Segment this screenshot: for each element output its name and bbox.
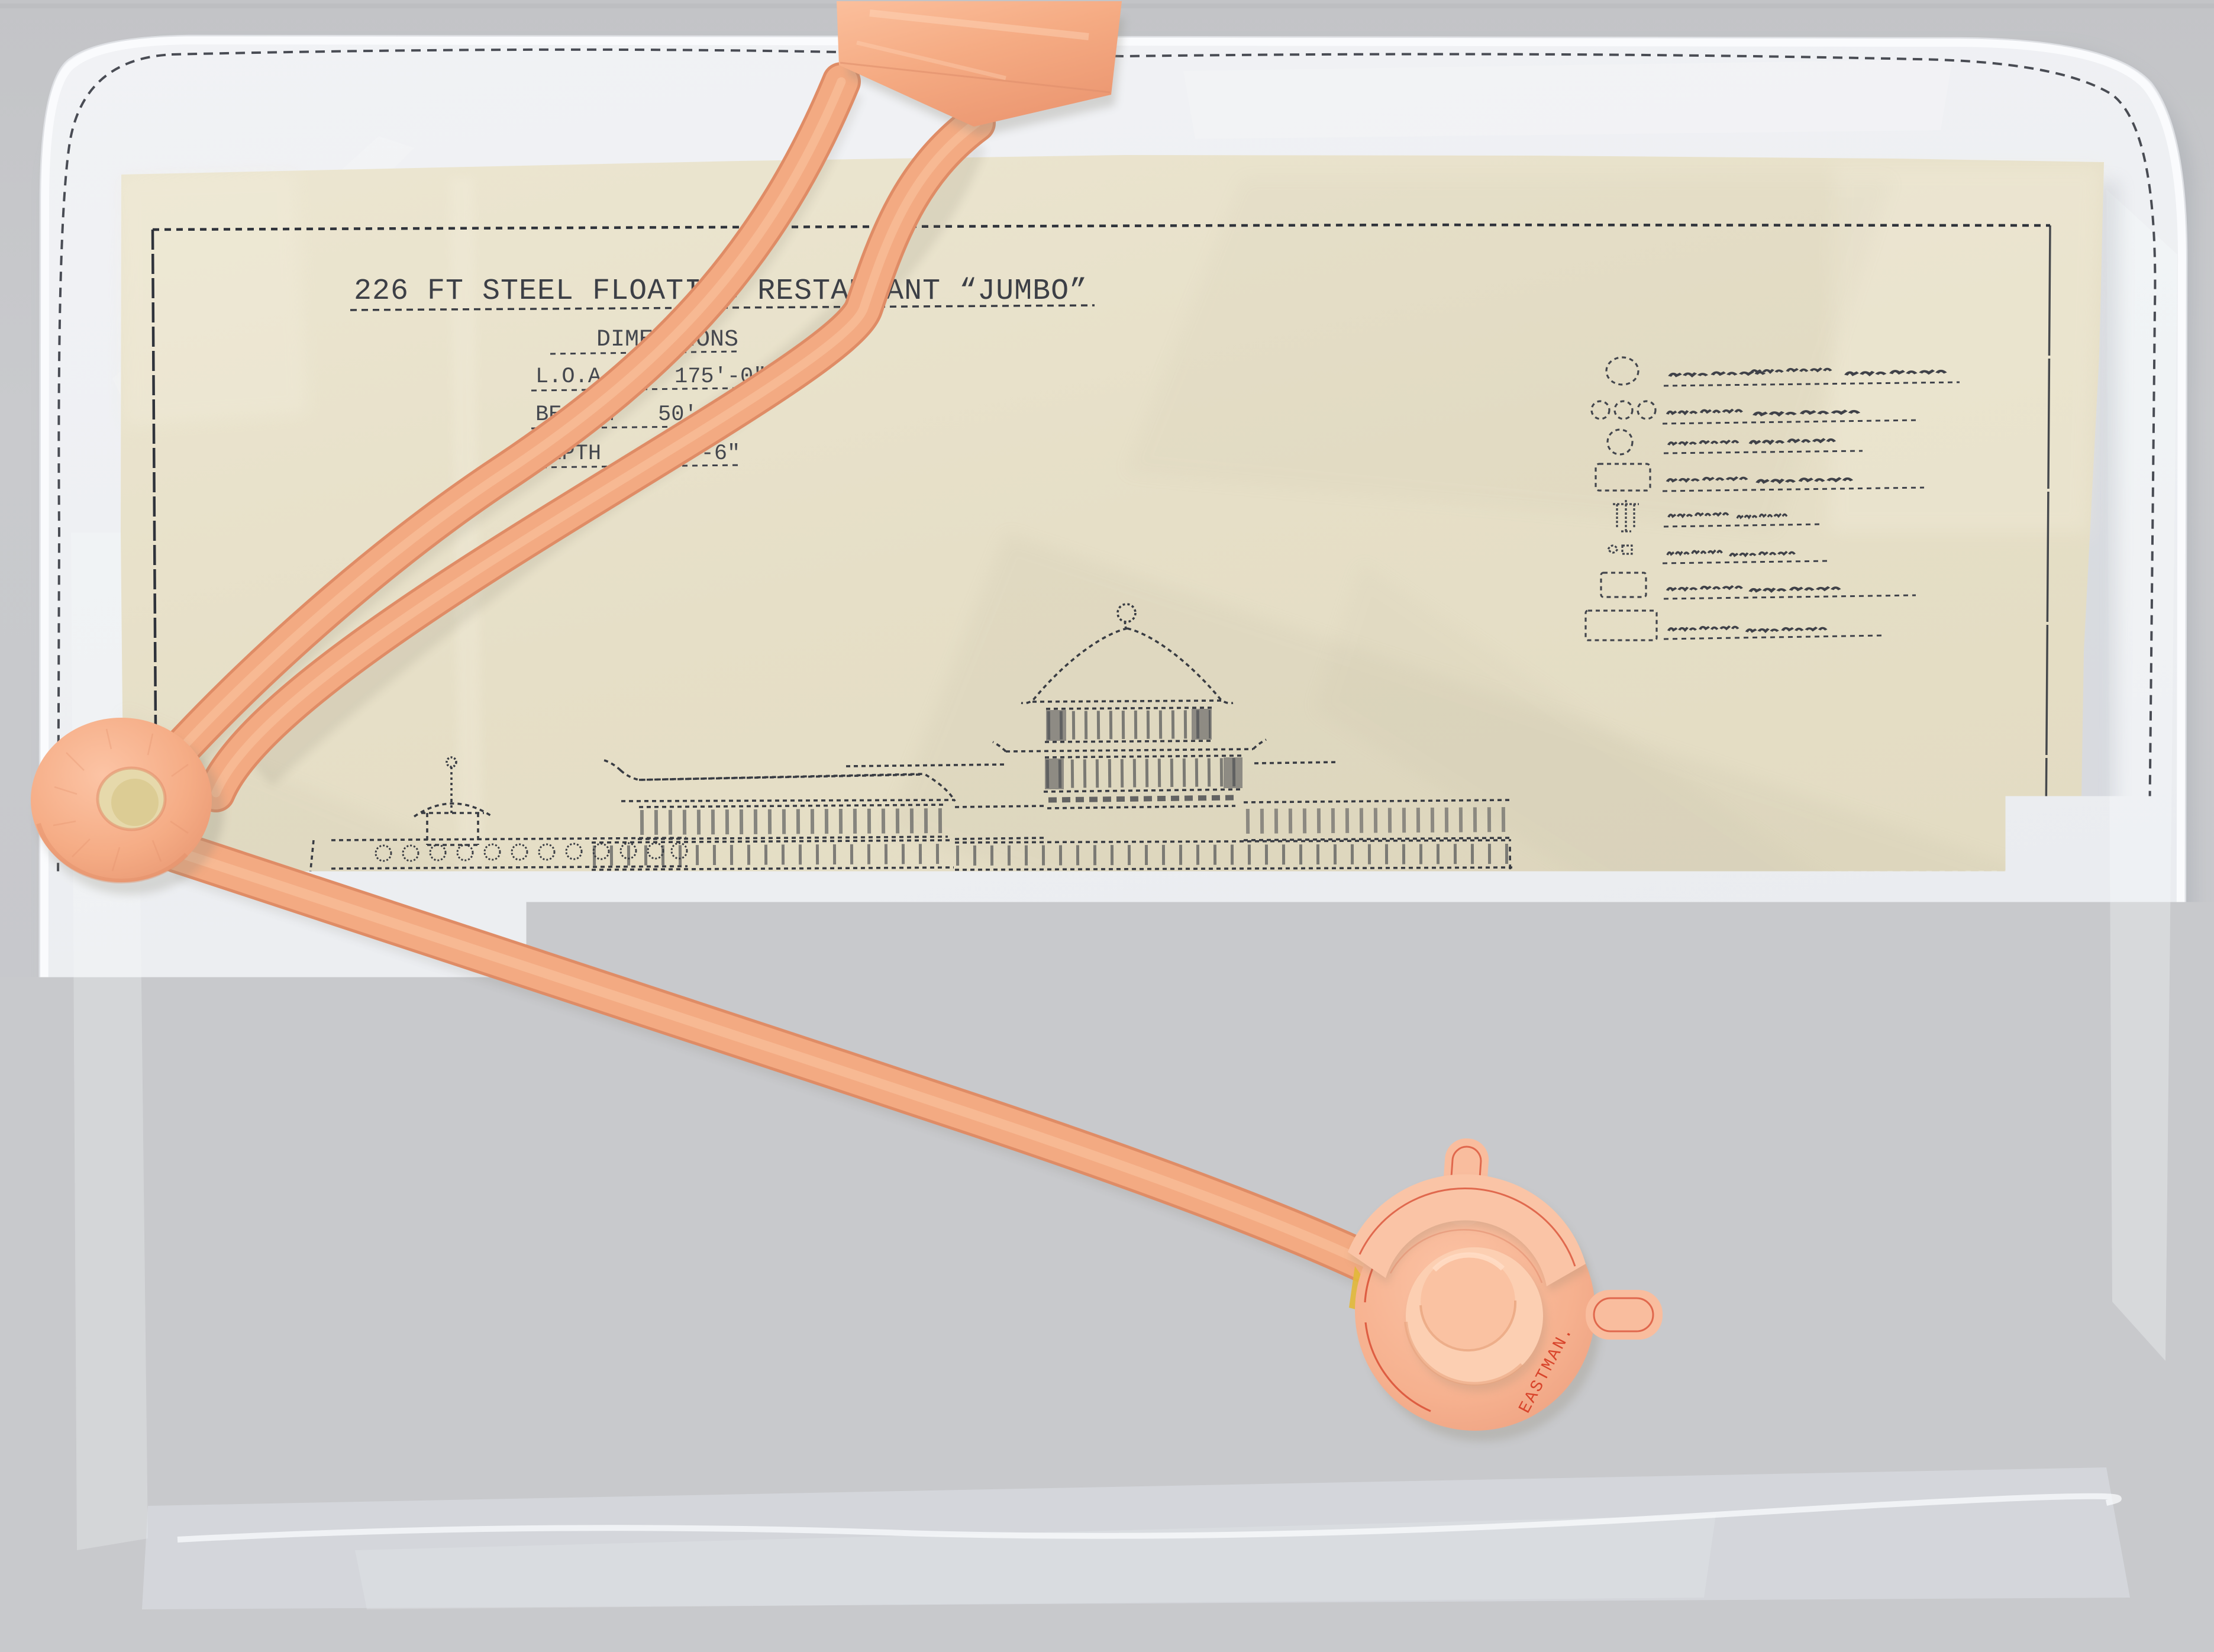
svg-text:WAM: WAM	[1232, 1279, 1288, 1303]
svg-text:IDILSUH: IDILSUH	[1179, 1389, 1282, 1409]
svg-text:7'/11/208: 7'/11/208	[1747, 1418, 1845, 1443]
svg-text:4 7: 4 7	[1099, 1250, 1125, 1266]
svg-text:NAVAL ARCHITECT & MARINE SURVE: NAVAL ARCHITECT & MARINE SURVEYOR	[1581, 1377, 2077, 1401]
svg-text:L.O.B.112: L.O.B.112	[1087, 1226, 1183, 1246]
svg-text:PROFILE: PROFILE	[1099, 1279, 1214, 1304]
svg-text:18.8: 18.8	[1993, 1209, 2035, 1230]
svg-text:118: 118	[342, 1225, 378, 1248]
svg-text:DRAWING NO: DRAWING NO	[1550, 1419, 1706, 1444]
svg-text:□HTTI/II/MAM: □HTTI/II/MAM	[1161, 1420, 1290, 1441]
